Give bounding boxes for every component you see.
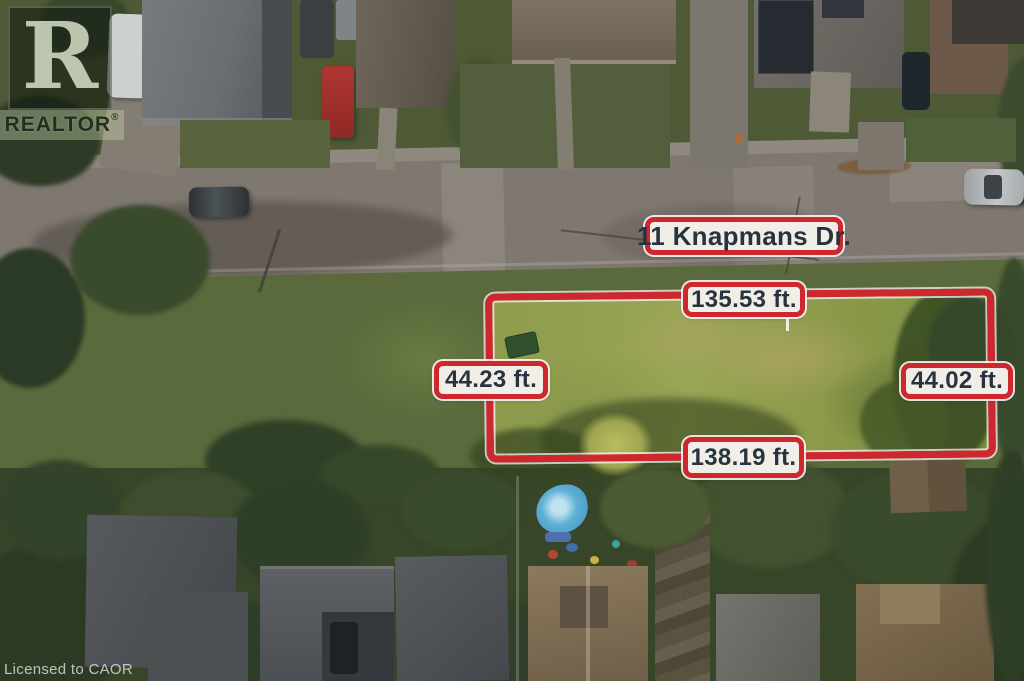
yard-toy [612,540,620,548]
car-sunroof [984,175,1002,199]
registered-trademark-symbol: ® [111,112,119,123]
realtor-wordmark: REALTOR® [0,110,124,140]
house-roof [395,555,509,681]
aerial-listing-photo: 11 Knapmans Dr. 135.53 ft. 44.23 ft. 44.… [0,0,1024,681]
top-dimension-label: 135.53 ft. [683,282,805,317]
fence-line [516,476,519,681]
front-lawn [906,118,1016,162]
road-patch [441,162,505,271]
yard-toy [590,556,599,564]
roof-gable [880,584,940,624]
bottom-dimension-text: 138.19 ft. [691,444,797,472]
parked-car [300,0,334,58]
top-dimension-text: 135.53 ft. [691,286,797,314]
solar-panels [822,0,864,18]
tree [600,468,710,548]
front-lawn [180,120,330,168]
left-dimension-label: 44.23 ft. [434,361,548,399]
front-walkway [809,71,851,132]
right-dimension-label: 44.02 ft. [901,363,1013,399]
tree [400,470,520,550]
orange-marker [736,134,742,143]
yard-toy [545,532,571,542]
house-roof [148,592,248,681]
house-roof [952,0,1024,44]
bottom-dimension-label: 138.19 ft. [683,437,804,478]
dark-van [902,52,930,110]
front-walkway [376,108,397,171]
parked-car [189,186,250,217]
house-roof [512,0,676,64]
right-dimension-text: 44.02 ft. [911,367,1003,395]
left-dimension-text: 44.23 ft. [445,366,537,394]
solar-panels [758,0,814,74]
parked-car [330,622,358,674]
yard-toy [566,543,578,552]
driveway [858,122,904,170]
roof-ridge [586,566,590,681]
license-note: Licensed to CAOR [4,661,133,678]
garden-shed [889,453,967,514]
roof-dormer [560,586,608,628]
realtor-logo-icon: R [8,6,112,110]
address-text: 11 Knapmans Dr. [637,221,851,252]
realtor-logo-letter: R [22,10,98,102]
tree [70,205,210,315]
yard-toy [548,550,558,559]
realtor-wordmark-text: REALTOR [5,113,112,136]
house-roof [716,594,820,681]
house-roof-face [262,0,292,122]
address-label: 11 Knapmans Dr. [645,217,843,255]
house-roof [356,0,454,108]
